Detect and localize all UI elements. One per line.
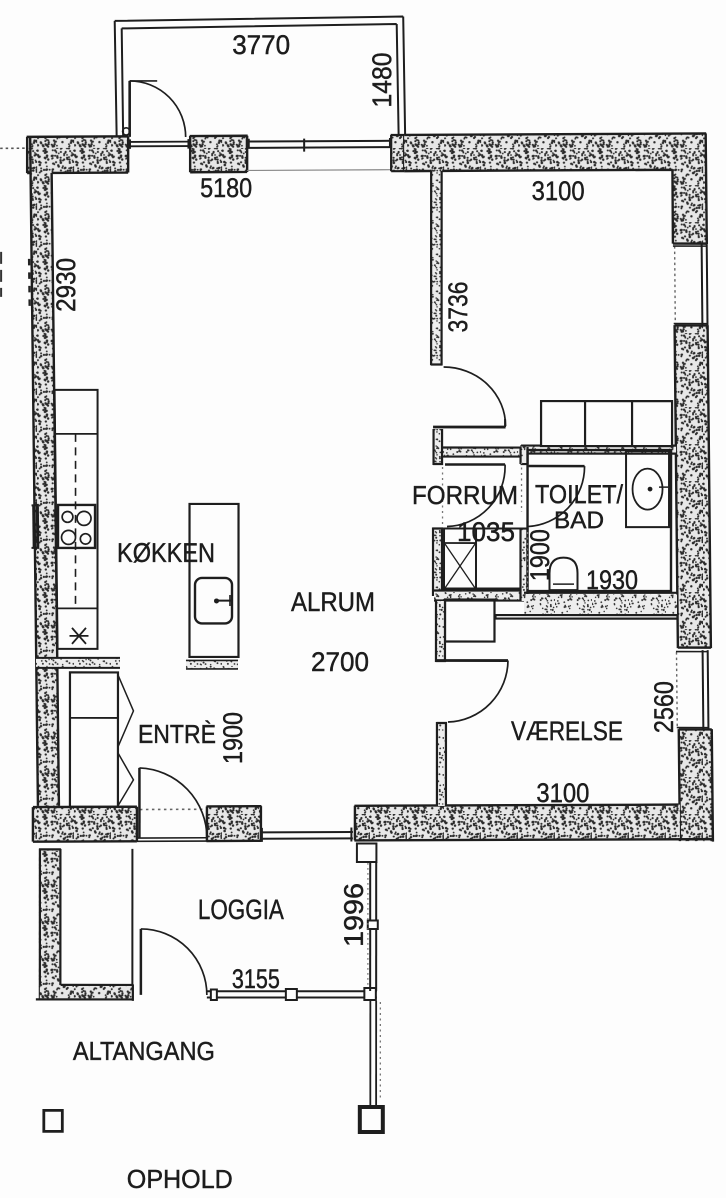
svg-text:3155: 3155 — [232, 964, 280, 994]
svg-text:ALRUM: ALRUM — [291, 587, 375, 617]
svg-text:2560: 2560 — [649, 681, 679, 733]
svg-text:5180: 5180 — [200, 173, 252, 203]
svg-text:3100: 3100 — [536, 778, 589, 808]
svg-text:ALTANGANG: ALTANGANG — [73, 1036, 215, 1066]
svg-text:1996: 1996 — [339, 883, 369, 947]
svg-text:1930: 1930 — [586, 565, 638, 595]
svg-text:ENTRÈ: ENTRÈ — [138, 719, 216, 749]
svg-text:1035: 1035 — [457, 517, 515, 547]
svg-text:1900: 1900 — [218, 712, 248, 764]
svg-text:LOGGIA: LOGGIA — [198, 894, 284, 925]
svg-text:OPHOLD: OPHOLD — [127, 1164, 233, 1194]
svg-text:2930: 2930 — [51, 258, 81, 312]
svg-text:2700: 2700 — [311, 647, 369, 677]
svg-text:FORRUM: FORRUM — [412, 480, 518, 510]
svg-text:KØKKEN: KØKKEN — [117, 538, 215, 568]
svg-text:1480: 1480 — [367, 53, 397, 108]
svg-text:3100: 3100 — [532, 176, 585, 206]
svg-text:3770: 3770 — [232, 30, 290, 60]
svg-text:VÆRELSE: VÆRELSE — [511, 716, 623, 746]
svg-text:1900: 1900 — [525, 529, 555, 581]
svg-text:TOILET/: TOILET/ — [535, 479, 624, 509]
svg-text:BAD: BAD — [554, 507, 604, 534]
svg-text:3736: 3736 — [443, 282, 473, 333]
